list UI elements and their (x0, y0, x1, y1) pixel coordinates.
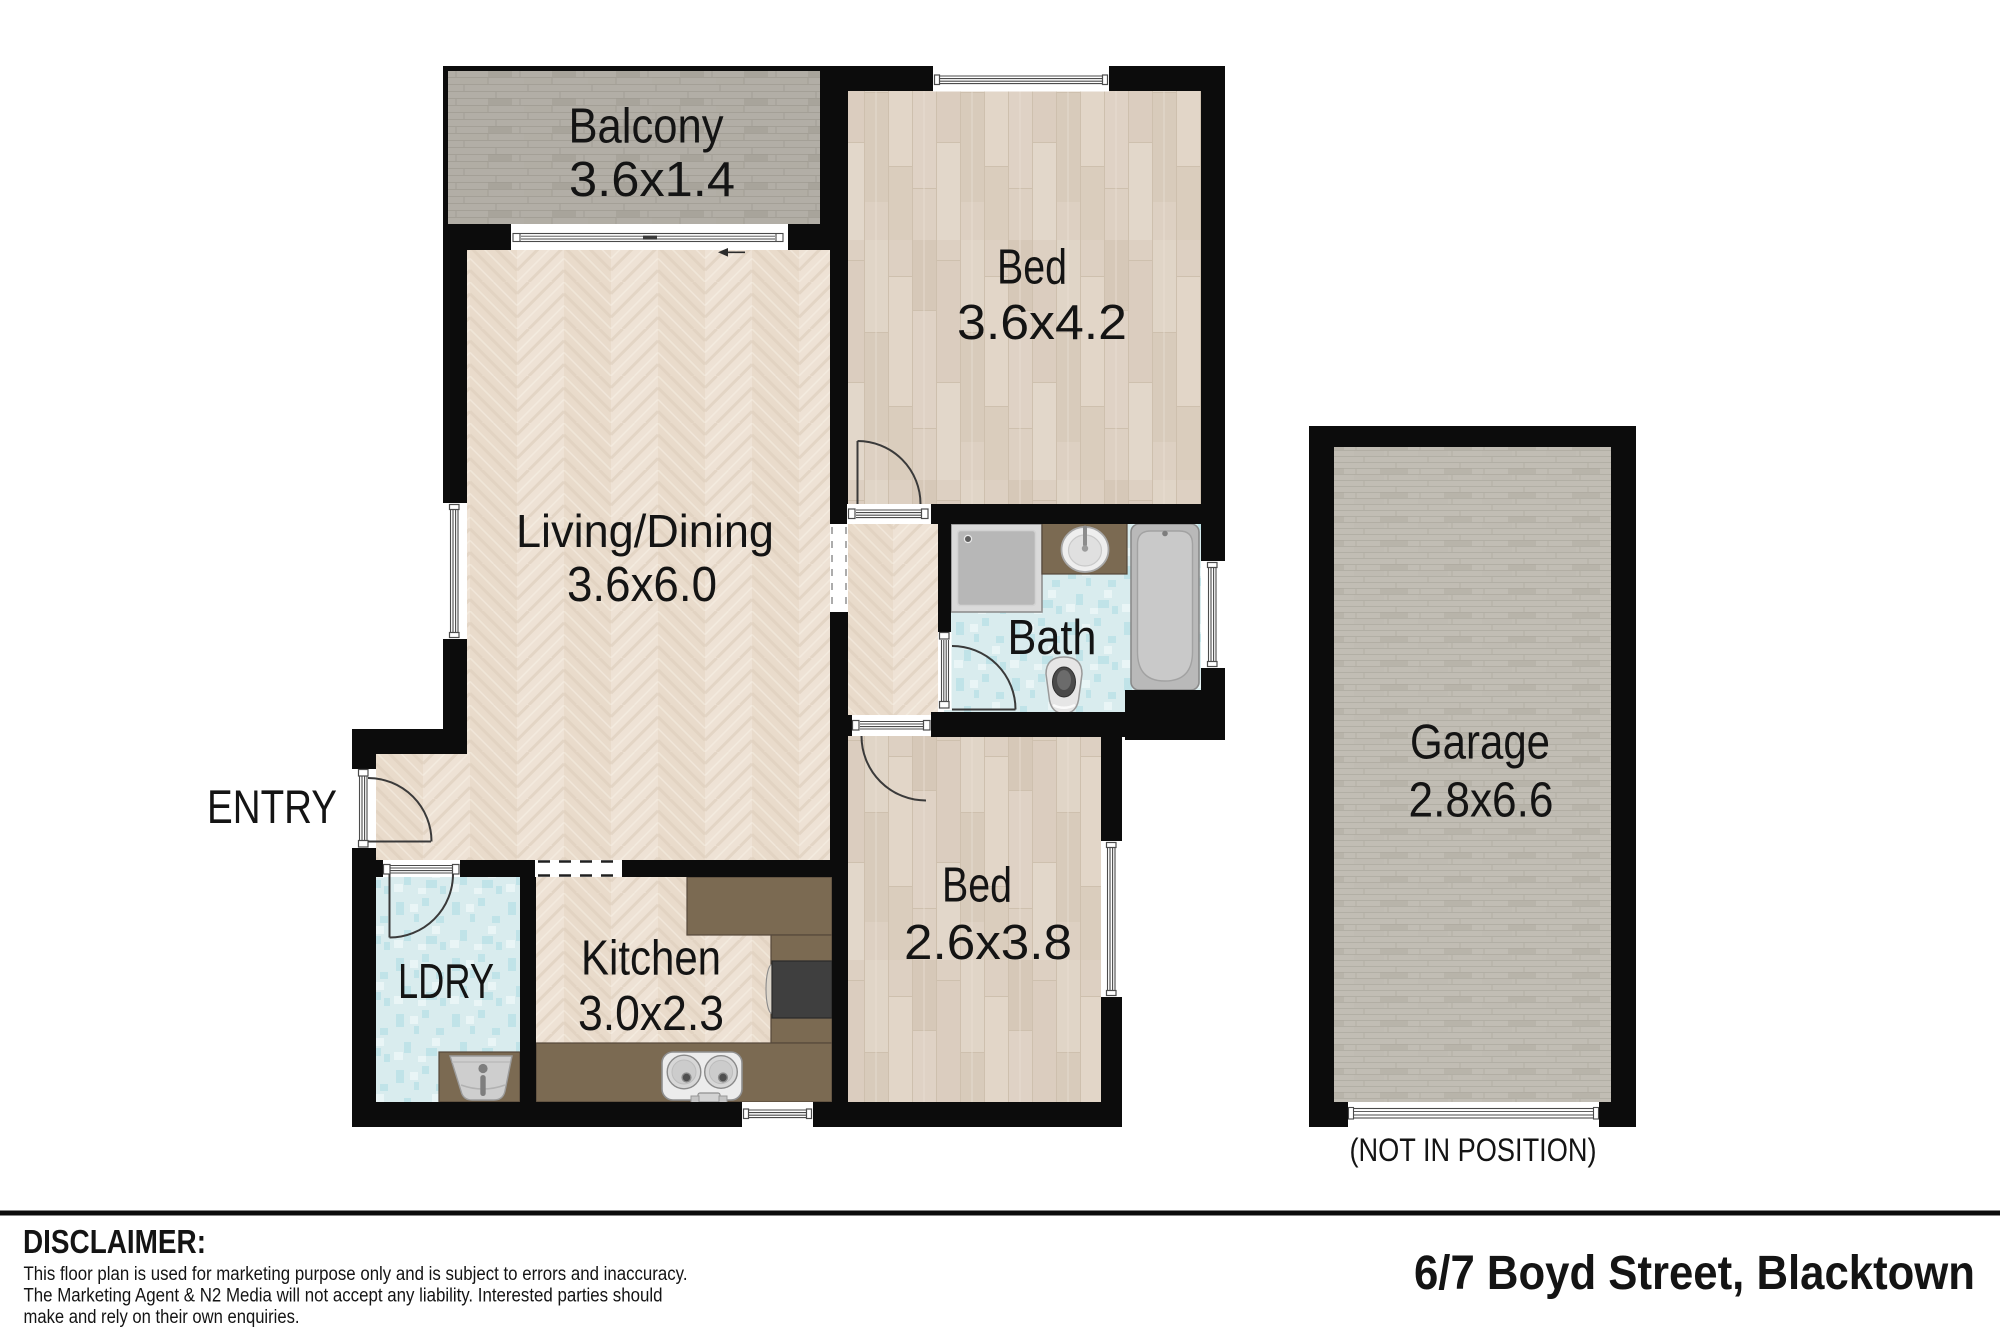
svg-text:(NOT IN POSITION): (NOT IN POSITION) (1350, 1132, 1597, 1168)
svg-text:Garage: Garage (1410, 716, 1550, 770)
svg-text:2.8x6.6: 2.8x6.6 (1409, 774, 1554, 828)
svg-text:3.6x4.2: 3.6x4.2 (957, 296, 1127, 350)
svg-text:The Marketing Agent & N2 Media: The Marketing Agent & N2 Media will not … (24, 1286, 663, 1307)
svg-text:Balcony: Balcony (569, 100, 724, 154)
svg-text:3.6x1.4: 3.6x1.4 (569, 153, 735, 207)
svg-text:Bed: Bed (997, 241, 1067, 295)
svg-text:DISCLAIMER:: DISCLAIMER: (23, 1223, 206, 1260)
svg-text:Living/Dining: Living/Dining (516, 505, 774, 557)
svg-text:3.6x6.0: 3.6x6.0 (567, 558, 717, 612)
svg-text:ENTRY: ENTRY (207, 780, 337, 833)
svg-text:make and rely on their own enq: make and rely on their own enquiries. (24, 1307, 300, 1328)
svg-text:Kitchen: Kitchen (581, 932, 721, 986)
svg-text:6/7 Boyd Street, Blacktown: 6/7 Boyd Street, Blacktown (1414, 1247, 1975, 1300)
svg-text:LDRY: LDRY (398, 955, 494, 1009)
svg-text:3.0x2.3: 3.0x2.3 (578, 987, 724, 1041)
svg-text:2.6x3.8: 2.6x3.8 (904, 916, 1072, 970)
svg-text:Bath: Bath (1008, 611, 1097, 665)
svg-text:Bed: Bed (942, 859, 1012, 913)
svg-text:This floor plan is used for ma: This floor plan is used for marketing pu… (24, 1264, 688, 1285)
